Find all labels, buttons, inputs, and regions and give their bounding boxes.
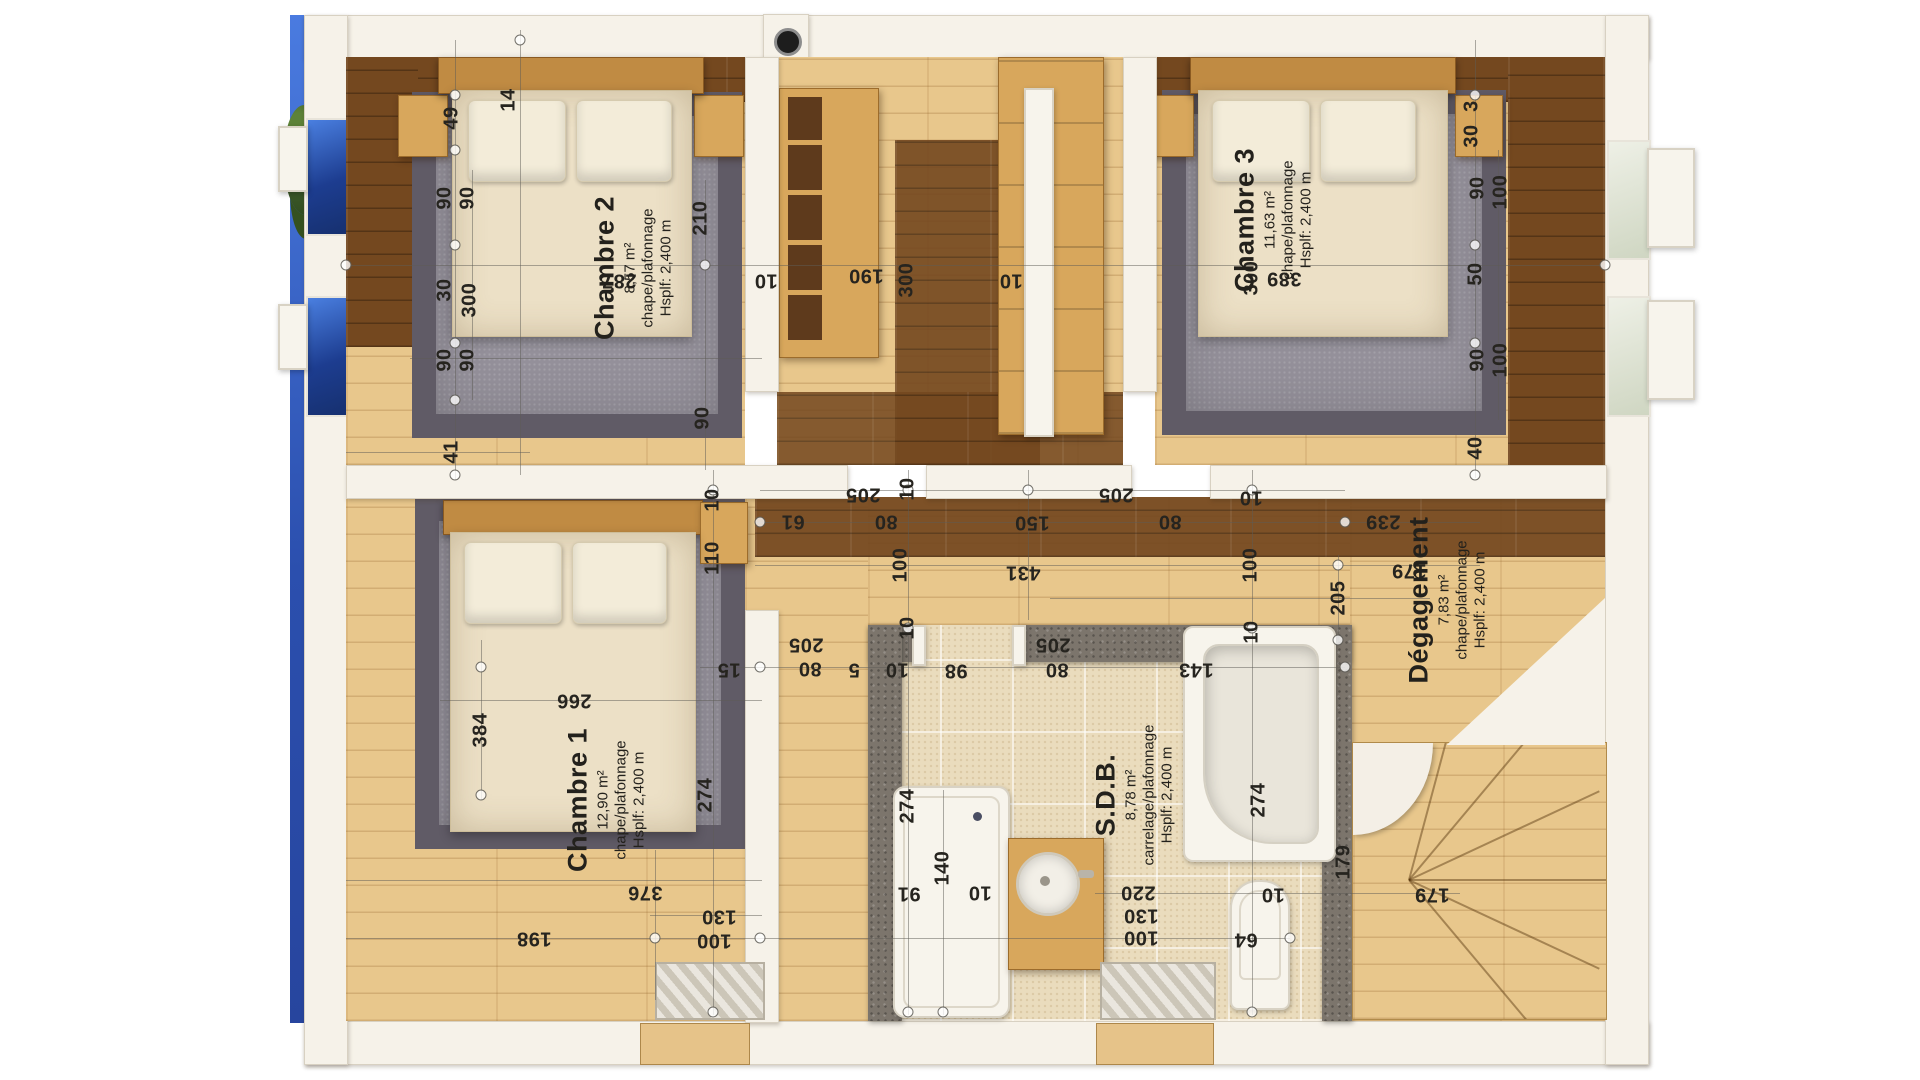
dimension-label: 90 (457, 186, 480, 209)
dimension-line (346, 880, 762, 881)
dimension-node (515, 35, 526, 46)
dimension-line (943, 790, 944, 1015)
room-label-chambre-2: Chambre 2 8,57 m² chape/plafonnage Hsplf… (590, 196, 675, 340)
dimension-node (450, 395, 461, 406)
dimension-node (450, 145, 461, 156)
dimension-label: 100 (697, 929, 732, 952)
dimension-label: 266 (557, 689, 592, 712)
dimension-line (755, 565, 1480, 566)
dimension-label: 90 (692, 406, 715, 429)
dimension-node (755, 933, 766, 944)
dimension-label: 100 (1240, 548, 1263, 583)
room-label-chambre-1: Chambre 1 12,90 m² chape/plafonnage Hspl… (563, 728, 648, 872)
dimension-label: 239 (1366, 510, 1401, 533)
dimension-label: 91 (897, 882, 920, 905)
room-height: Hsplf: 2,400 m (1298, 172, 1315, 269)
dimension-label: 110 (702, 541, 725, 575)
dimension-label: 14 (498, 88, 521, 111)
dimension-label: 50 (1465, 262, 1488, 285)
dimension-label: 98 (944, 659, 967, 682)
dimension-label: 41 (441, 440, 464, 463)
dimension-label: 140 (932, 851, 955, 886)
room-name: Chambre 2 (590, 196, 621, 340)
dimension-label: 64 (1234, 928, 1257, 951)
room-name: Dégagement (1404, 516, 1435, 683)
dimension-node (1023, 485, 1034, 496)
dimension-label: 5 (848, 658, 860, 681)
dimension-node (450, 240, 461, 251)
dimension-node (1600, 260, 1611, 271)
dimension-label: 90 (1467, 348, 1490, 371)
dimension-node (1470, 90, 1481, 101)
dimension-line (700, 667, 1345, 668)
dimension-line (346, 265, 1605, 266)
dimension-label: 10 (885, 658, 908, 681)
room-finish: chape/plafonnage (1280, 160, 1297, 279)
room-label-degagement: Dégagement 7,83 m² chape/plafonnage Hspl… (1404, 516, 1489, 683)
dimension-label: 10 (897, 477, 920, 500)
room-name: Chambre 3 (1230, 148, 1261, 292)
dimension-node (1340, 662, 1351, 673)
dimension-label: 30 (434, 278, 457, 301)
room-height: Hsplf: 2,400 m (1159, 747, 1176, 844)
dimension-label: 300 (459, 283, 482, 318)
room-finish: chape/plafonnage (613, 740, 630, 859)
dimension-label: 10 (897, 616, 920, 639)
dimension-label: 80 (798, 657, 821, 680)
dimension-node (755, 517, 766, 528)
dimension-label: 205 (1328, 581, 1351, 616)
dimension-label: 10 (702, 488, 725, 511)
dimension-label: 376 (628, 881, 663, 904)
dimension-node (1333, 635, 1344, 646)
dimension-node (755, 662, 766, 673)
dimension-label: 80 (1045, 658, 1068, 681)
dimension-label: 198 (517, 927, 552, 950)
dimension-label: 10 (754, 269, 777, 292)
room-area: 11,63 m² (1262, 191, 1279, 249)
dimension-label: 90 (457, 348, 480, 371)
dimension-label: 130 (1124, 904, 1159, 927)
dimension-label: 90 (434, 348, 457, 371)
dimension-label: 179 (1415, 883, 1450, 906)
dimension-node (1470, 338, 1481, 349)
room-finish: carrelage/plafonnage (1141, 725, 1158, 866)
dimension-line (346, 452, 530, 453)
dimension-label: 49 (441, 106, 464, 129)
room-label-sdb: S.D.B. 8,78 m² carrelage/plafonnage Hspl… (1091, 725, 1176, 866)
dimension-node (476, 662, 487, 673)
dimension-label: 61 (781, 510, 804, 533)
floor-plan: 4914909030300909041210901011027438430010… (0, 0, 1920, 1080)
room-height: Hsplf: 2,400 m (658, 220, 675, 317)
dimension-node (1333, 560, 1344, 571)
dimension-label: 40 (1465, 436, 1488, 459)
dimension-node (1470, 240, 1481, 251)
dimension-label: 300 (896, 263, 919, 298)
dimension-label: 30 (1461, 124, 1484, 147)
dimension-label: 3 (1461, 100, 1484, 112)
dimension-label: 179 (1333, 845, 1356, 880)
dimension-label: 100 (1490, 175, 1513, 210)
dimension-label: 15 (717, 658, 740, 681)
dimension-node (1247, 1007, 1258, 1018)
dimension-label: 205 (1099, 483, 1134, 506)
dimension-node (938, 1007, 949, 1018)
dimension-label: 10 (1239, 486, 1262, 509)
dimension-label: 100 (1124, 926, 1159, 949)
dimension-node (450, 90, 461, 101)
dimension-label: 274 (695, 778, 718, 813)
dimension-label: 80 (1158, 510, 1181, 533)
room-area: 8,57 m² (622, 243, 639, 294)
dimension-node (1285, 933, 1296, 944)
room-name: Chambre 1 (563, 728, 594, 872)
dimension-line (655, 850, 656, 1000)
dimension-label: 10 (968, 881, 991, 904)
room-finish: chape/plafonnage (1454, 540, 1471, 659)
dimension-label: 431 (1006, 561, 1041, 584)
dimension-node (650, 933, 661, 944)
dimension-node (450, 470, 461, 481)
dimension-line (1050, 598, 1430, 599)
dimension-label: 150 (1015, 511, 1050, 534)
dimension-node (700, 260, 711, 271)
dimension-node (1470, 470, 1481, 481)
dimension-line (440, 700, 762, 701)
dimension-labels-layer: 4914909030300909041210901011027438430010… (0, 0, 1920, 1080)
dimension-label: 210 (690, 201, 713, 236)
room-height: Hsplf: 2,400 m (631, 752, 648, 849)
dimension-label: 100 (1490, 343, 1513, 378)
room-area: 7,83 m² (1436, 575, 1453, 626)
dimension-node (708, 1007, 719, 1018)
dimension-label: 130 (702, 905, 737, 928)
dimension-node (450, 338, 461, 349)
dimension-label: 90 (1467, 176, 1490, 199)
dimension-label: 100 (890, 548, 913, 583)
dimension-label: 80 (874, 510, 897, 533)
dimension-label: 10 (1241, 620, 1264, 643)
dimension-label: 274 (897, 789, 920, 824)
dimension-label: 143 (1179, 658, 1214, 681)
dimension-label: 90 (434, 186, 457, 209)
dimension-node (341, 260, 352, 271)
dimension-label: 190 (849, 264, 884, 287)
room-label-chambre-3: Chambre 3 11,63 m² chape/plafonnage Hspl… (1230, 148, 1315, 292)
dimension-label: 274 (1248, 783, 1271, 818)
dimension-label: 205 (846, 483, 881, 506)
dimension-node (1340, 517, 1351, 528)
dimension-label: 10 (999, 269, 1022, 292)
dimension-node (476, 790, 487, 801)
room-area: 8,78 m² (1123, 770, 1140, 821)
dimension-node (903, 1007, 914, 1018)
room-area: 12,90 m² (595, 770, 612, 829)
dimension-label: 205 (789, 633, 824, 656)
dimension-label: 220 (1121, 881, 1156, 904)
dimension-label: 384 (470, 713, 493, 748)
dimension-label: 205 (1036, 633, 1071, 656)
room-finish: chape/plafonnage (640, 208, 657, 327)
dimension-label: 10 (1261, 883, 1284, 906)
room-height: Hsplf: 2,400 m (1472, 552, 1489, 649)
room-name: S.D.B. (1091, 754, 1122, 837)
